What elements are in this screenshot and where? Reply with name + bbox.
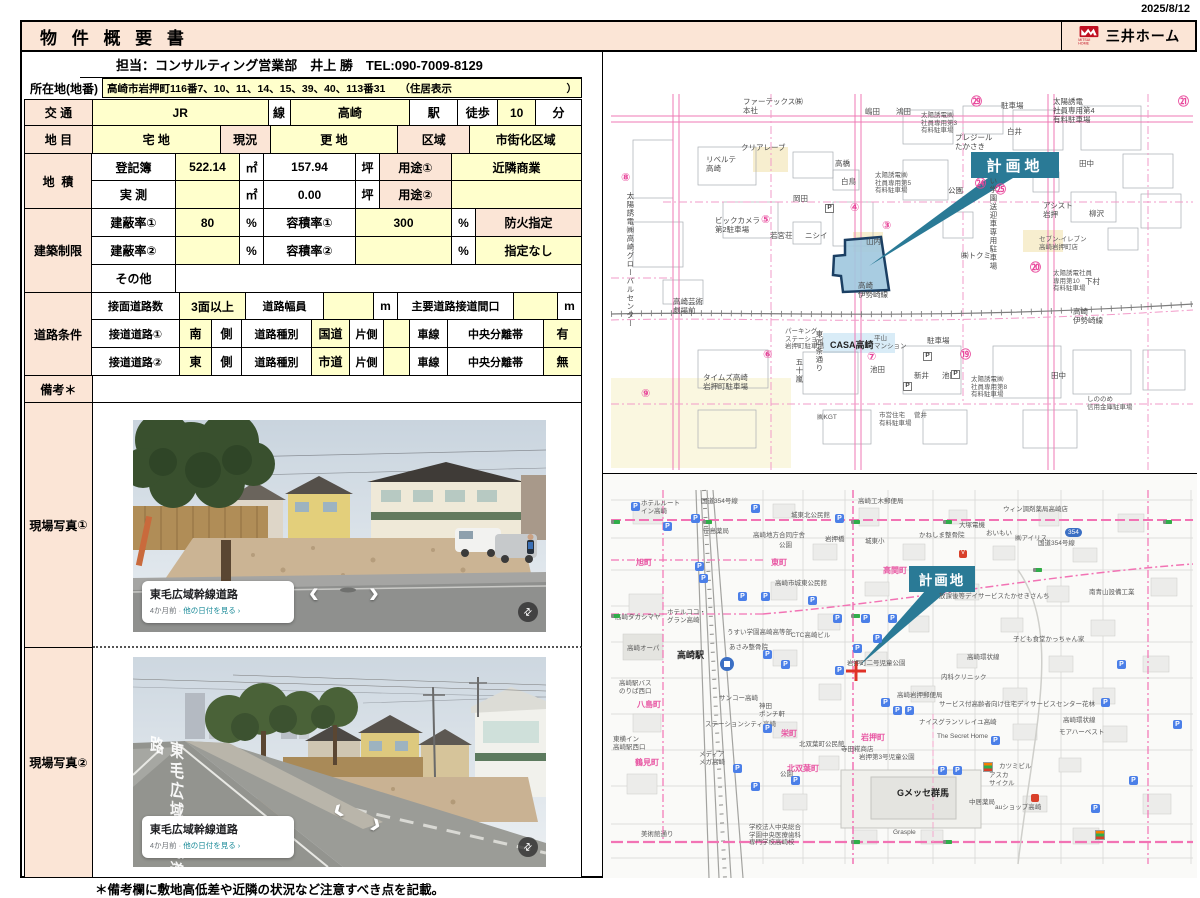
map-label: セブン-イレブン 高崎岩押町店 bbox=[1039, 236, 1087, 251]
lane-unit: 車線 bbox=[410, 320, 448, 348]
streetview-link: 他の日付を見る › bbox=[183, 841, 240, 850]
parking-icon: P bbox=[903, 382, 912, 391]
transport-line: JR bbox=[93, 100, 269, 126]
map-label: ⑦ bbox=[867, 351, 876, 364]
side-unit: 側 bbox=[212, 320, 242, 348]
tsubo-unit: 坪 bbox=[356, 181, 380, 209]
location-close: ） bbox=[567, 81, 578, 96]
land-status-label: 現況 bbox=[221, 126, 271, 154]
location-address: 高崎市岩押町116番7、10、11、14、15、39、40、113番31 bbox=[107, 81, 385, 96]
percent-unit: % bbox=[452, 237, 476, 265]
map-label: 岩押町 bbox=[861, 733, 885, 742]
map-label: 岩押町二号児童公園 bbox=[847, 660, 906, 668]
map-label: うすい学園高崎高等部 bbox=[727, 629, 792, 637]
group-road-conditions: 道路条件 接面道路数 3面以上 道路幅員 m 主要道路接道間口 m 接道道路① … bbox=[24, 293, 582, 376]
road2-type: 市道 bbox=[312, 348, 350, 376]
map-label: モアハーベスト bbox=[1059, 729, 1104, 737]
map-label: プレジール たかさき bbox=[955, 134, 993, 152]
survey-m2 bbox=[176, 181, 240, 209]
maps-panel: ファーテックス㈱ 本社嶋田鴻田太陽誘電㈱ 社員専用第3 有料駐車場駐車場太陽誘電… bbox=[602, 52, 1197, 878]
land-area-label: 地 積 bbox=[25, 154, 92, 209]
group-photo1: 現場写真① bbox=[24, 403, 582, 648]
map-label: 東横イン 高崎駅西口 bbox=[613, 736, 646, 751]
map-label: おいもい bbox=[986, 530, 1012, 538]
road-width-value bbox=[324, 293, 374, 320]
parking-icon: P bbox=[781, 660, 790, 669]
cadastral-map: ファーテックス㈱ 本社嶋田鴻田太陽誘電㈱ 社員専用第3 有料駐車場駐車場太陽誘電… bbox=[602, 52, 1197, 474]
page-title: 物 件 概 要 書 bbox=[22, 24, 1061, 49]
map-label: 高崎タカシマヤ bbox=[615, 614, 661, 622]
map-label: 岡田 bbox=[793, 195, 808, 204]
parking-icon: P bbox=[833, 614, 842, 623]
map-label: ビックカメラ 第2駐車場 bbox=[715, 217, 760, 235]
map-label: 高崎工木郵便局 bbox=[858, 498, 904, 506]
median-label: 中央分離帯 bbox=[448, 348, 544, 376]
use2-value bbox=[452, 181, 582, 209]
traffic-signal-icon bbox=[851, 520, 860, 524]
road-width-label: 道路幅員 bbox=[246, 293, 324, 320]
map-label: 栄町 bbox=[781, 729, 797, 738]
registry-m2: 522.14 bbox=[176, 154, 240, 181]
streetview-arrow-right-icon: › bbox=[369, 578, 379, 608]
map-label: 寺田糀商店 bbox=[841, 746, 874, 754]
survey-label: 実 測 bbox=[92, 181, 176, 209]
map-label: 東四条通り bbox=[814, 330, 823, 373]
parking-icon: P bbox=[631, 502, 640, 511]
parking-icon: P bbox=[1129, 776, 1138, 785]
row-remarks: 備考＊ bbox=[24, 376, 582, 403]
parking-icon: P bbox=[893, 706, 902, 715]
map-label: 鴻田 bbox=[896, 108, 911, 117]
traffic-signal-icon bbox=[851, 614, 860, 618]
map-label: 太陽誘電社員 専用第10 有料駐車場 bbox=[1053, 270, 1092, 293]
map-label: ㉙ bbox=[971, 96, 982, 109]
restrictions-label: 建築制限 bbox=[25, 209, 92, 293]
one-side-label: 片側 bbox=[350, 348, 384, 376]
parking-icon: P bbox=[1091, 804, 1100, 813]
store-poi-icon: V bbox=[959, 550, 967, 558]
map-label: 太陽誘電㈱ 社員専用第3 有料駐車場 bbox=[921, 112, 957, 135]
road-count-value: 3面以上 bbox=[180, 293, 246, 320]
store-poi-icon bbox=[983, 762, 993, 772]
location-jusho: （住居表示 bbox=[399, 81, 452, 96]
map-label: 高崎岩押郵便局 bbox=[897, 692, 943, 700]
document-date: 2025/8/12 bbox=[1141, 3, 1190, 15]
transport-walk-unit: 分 bbox=[536, 100, 582, 126]
road-type-label: 道路種別 bbox=[242, 348, 312, 376]
group-photo2: 現場写真② bbox=[24, 648, 582, 878]
parking-icon: P bbox=[853, 644, 862, 653]
parking-icon: P bbox=[835, 666, 844, 675]
row-road1: 接道道路① 南 側 道路種別 国道 片側 車線 中央分離帯 有 bbox=[92, 320, 582, 348]
map-label: 若宮荘 bbox=[770, 232, 793, 241]
map-label: ウィン調剤薬局高崎店 bbox=[1003, 506, 1068, 514]
traffic-signal-icon bbox=[851, 840, 860, 844]
map-label: 太陽誘電㈱ 社員専用第8 有料駐車場 bbox=[971, 376, 1007, 399]
brand-name: 三井ホーム bbox=[1106, 26, 1181, 46]
contact-line: 担当：コンサルティング営業部 井上 勝 TEL:090-7009-8129 bbox=[116, 55, 483, 74]
parking-icon: P bbox=[825, 204, 834, 213]
parking-icon: P bbox=[738, 592, 747, 601]
land-category-value: 宅 地 bbox=[93, 126, 221, 154]
registry-label: 登記簿 bbox=[92, 154, 176, 181]
road1-label: 接道道路① bbox=[92, 320, 180, 348]
parking-icon: P bbox=[763, 650, 772, 659]
map-label: auショップ高崎 bbox=[995, 804, 1041, 812]
map-label: アスカ サイクル bbox=[989, 772, 1015, 787]
map-label: ㉕ bbox=[995, 184, 1006, 197]
brand-logo: MITSUI HOME 三井ホーム bbox=[1061, 22, 1195, 50]
map-label: ③ bbox=[882, 220, 891, 233]
remarks-label: 備考＊ bbox=[25, 376, 93, 403]
map-label: 五十嵐 bbox=[794, 358, 803, 384]
map-label: 高崎環状線 bbox=[1063, 717, 1096, 725]
map-label: 嶋田 bbox=[865, 108, 880, 117]
contact-row: 担当：コンサルティング営業部 井上 勝 TEL:090-7009-8129 bbox=[24, 52, 582, 77]
parking-icon: P bbox=[953, 766, 962, 775]
map-label: クリアレーブ bbox=[741, 144, 786, 153]
side-unit: 側 bbox=[212, 348, 242, 376]
road2-median: 無 bbox=[544, 348, 582, 376]
traffic-signal-icon bbox=[943, 520, 952, 524]
title-bar: 物 件 概 要 書 MITSUI HOME 三井ホーム bbox=[22, 22, 1195, 52]
map-label: The Secret Home bbox=[937, 733, 988, 741]
map-label: 公園 bbox=[948, 187, 963, 196]
map-label: 菅井 bbox=[914, 412, 927, 420]
use2-label: 用途② bbox=[380, 181, 452, 209]
map-label: ㉔ bbox=[975, 178, 986, 191]
transport-line-suffix: 線 bbox=[269, 100, 291, 126]
far1-label: 容積率① bbox=[264, 209, 356, 237]
percent-unit: % bbox=[240, 237, 264, 265]
other-label: その他 bbox=[92, 265, 176, 293]
map-label: 子ども食堂かっちゃん家 bbox=[1013, 636, 1085, 644]
streetview-arrow-left-icon: ‹ bbox=[309, 578, 319, 608]
city-road-map: ホテルルート イン高崎国道354号線城東北公民館笹島薬局高崎地方合同庁舎公園高崎… bbox=[602, 474, 1197, 878]
traffic-signal-icon bbox=[611, 614, 620, 618]
registry-tsubo: 157.94 bbox=[264, 154, 356, 181]
property-table: 担当：コンサルティング営業部 井上 勝 TEL:090-7009-8129 所在… bbox=[24, 52, 582, 878]
map-label: 東町 bbox=[771, 558, 787, 567]
group-land-area: 地 積 登記簿 522.14 ㎡ 157.94 坪 用途① 近隣商業 実 測 ㎡… bbox=[24, 154, 582, 209]
map-label: アシスト 岩押 bbox=[1043, 202, 1073, 220]
map-label: しののめ 信用金庫駐車場 bbox=[1087, 396, 1133, 411]
map-label: ⑤ bbox=[761, 214, 770, 227]
location-row: 所在地(地番) 高崎市岩押町116番7、10、11、14、15、39、40、11… bbox=[24, 77, 582, 99]
map-label: 柳沢 bbox=[1089, 210, 1104, 219]
road1-dir: 南 bbox=[180, 320, 212, 348]
frontage-label: 主要道路接道間口 bbox=[398, 293, 514, 320]
map-label: 高崎 伊勢崎線 bbox=[858, 282, 888, 300]
map-label: ホテルココ・ グラン高崎 bbox=[667, 609, 706, 624]
map-label: 高崎地方合同庁舎 bbox=[753, 532, 805, 540]
road-count-label: 接面道路数 bbox=[92, 293, 180, 320]
map-label: サンコー高崎 bbox=[719, 695, 758, 703]
map-label: 公園 bbox=[779, 542, 792, 550]
parking-icon: P bbox=[938, 766, 947, 775]
map-label: 城東北公民館 bbox=[791, 512, 830, 520]
map-label: 田中 bbox=[1079, 160, 1094, 169]
parking-icon: P bbox=[761, 592, 770, 601]
far2-value bbox=[356, 237, 452, 265]
footnote: ＊備考欄に敷地高低差や近隣の状況など注意すべき点を記載。 bbox=[95, 879, 444, 898]
parking-icon: P bbox=[1173, 720, 1182, 729]
map-label: 岩押第3号児童公園 bbox=[859, 754, 915, 762]
land-category-label: 地 目 bbox=[25, 126, 93, 154]
parking-icon: P bbox=[951, 370, 960, 379]
far2-label: 容積率② bbox=[264, 237, 356, 265]
streetview-link: 他の日付を見る › bbox=[183, 606, 240, 615]
map-label: 白井 bbox=[1007, 128, 1022, 137]
lane-unit: 車線 bbox=[410, 348, 448, 376]
map-label: Gメッセ群馬 bbox=[897, 788, 949, 799]
map-label: ⑥ bbox=[763, 349, 772, 362]
map-label: 高崎駅バス のりば西口 bbox=[619, 680, 652, 695]
map-label: ファーテックス㈱ 本社 bbox=[743, 98, 803, 116]
map-label: かねしま整骨院 bbox=[919, 532, 965, 540]
streetview-ago: 4か月前 bbox=[150, 606, 177, 615]
parking-icon: P bbox=[991, 736, 1000, 745]
map-label: 駐車場 bbox=[1001, 102, 1024, 111]
photo1-label: 現場写真① bbox=[25, 403, 93, 648]
use1-value: 近隣商業 bbox=[452, 154, 582, 181]
map-label: ㈱KGT bbox=[817, 414, 837, 422]
bcr1-label: 建蔽率① bbox=[92, 209, 176, 237]
store-poi-icon bbox=[1031, 794, 1039, 802]
map-label: 田中 bbox=[1051, 372, 1066, 381]
parking-icon: P bbox=[881, 698, 890, 707]
map-label: 国道354号線 bbox=[1038, 540, 1075, 548]
site-photo-2: 東毛広域幹線道路 ‹ › 東毛広域幹線道路 4か月前 · 他の日付を見る › ⇄ bbox=[133, 657, 546, 867]
parking-icon: P bbox=[699, 574, 708, 583]
road2-lanes bbox=[384, 348, 410, 376]
map-label: 高崎市城東公民館 bbox=[775, 580, 827, 588]
frontage-value bbox=[514, 293, 558, 320]
m-unit: m bbox=[374, 293, 398, 320]
map-label: 池田 bbox=[870, 366, 885, 375]
median-label: 中央分離帯 bbox=[448, 320, 544, 348]
remarks-value bbox=[93, 376, 582, 403]
map-label: メディア メガ高崎 bbox=[699, 751, 725, 766]
map-label: 白鳥 bbox=[841, 178, 856, 187]
traffic-signal-icon bbox=[1033, 568, 1042, 572]
map-label: ④ bbox=[850, 202, 859, 215]
map-label: 高崎オーパ bbox=[627, 645, 659, 653]
streetview-title: 東毛広域幹線道路 bbox=[150, 821, 286, 837]
one-side-label: 片側 bbox=[350, 320, 384, 348]
traffic-signal-icon bbox=[943, 840, 952, 844]
map-label: 高関町 bbox=[883, 566, 907, 575]
percent-unit: % bbox=[452, 209, 476, 237]
map-label: 高崎環状線 bbox=[967, 654, 1000, 662]
m-unit: m bbox=[558, 293, 582, 320]
map-label: Grasple bbox=[893, 829, 916, 837]
map-label: 国道354号線 bbox=[701, 498, 738, 506]
map-label: 内科クリニック bbox=[941, 674, 987, 682]
map-label: 平山 マンション bbox=[874, 335, 907, 350]
map-label: 城東小 bbox=[865, 538, 885, 546]
parking-icon: P bbox=[751, 504, 760, 513]
map-label: 354 bbox=[1065, 528, 1082, 537]
roads-label: 道路条件 bbox=[25, 293, 92, 376]
row-bcr2: 建蔽率② % 容積率② % 指定なし bbox=[92, 237, 582, 265]
brand-sub-text: MITSUI HOME bbox=[1078, 38, 1100, 45]
map-label: 笹島薬局 bbox=[703, 528, 729, 536]
map-label: 高崎 伊勢崎線 bbox=[1073, 308, 1103, 326]
map-label: 高崎駅 bbox=[677, 650, 704, 661]
streetview-title: 東毛広域幹線道路 bbox=[150, 586, 286, 602]
road-type-label: 道路種別 bbox=[242, 320, 312, 348]
map-label: 旭町 bbox=[636, 558, 652, 567]
other-value bbox=[176, 265, 582, 293]
map-label: ⑳ bbox=[1030, 262, 1041, 275]
map-label: 八島町 bbox=[637, 700, 661, 709]
map-label: 岩押橋 bbox=[825, 536, 845, 544]
map-label: 北双葉町公民館 bbox=[799, 741, 845, 749]
tsubo-unit: 坪 bbox=[356, 154, 380, 181]
parking-icon: P bbox=[905, 706, 914, 715]
map-label: 駐車場 bbox=[927, 337, 950, 346]
percent-unit: % bbox=[240, 209, 264, 237]
traffic-signal-icon bbox=[611, 520, 620, 524]
row-road2: 接道道路② 東 側 道路種別 市道 片側 車線 中央分離帯 無 bbox=[92, 348, 582, 376]
map-label: 高橋 bbox=[835, 160, 850, 169]
mitsui-home-logo-icon: MITSUI HOME bbox=[1077, 26, 1101, 46]
row-transport: 交 通 JR 線 高崎 駅 徒歩 10 分 bbox=[24, 99, 582, 126]
transport-label: 交 通 bbox=[25, 100, 93, 126]
site-photo-1: ‹ › 東毛広域幹線道路 4か月前 · 他の日付を見る › ⇄ bbox=[133, 420, 546, 632]
map-label: サービス付高齢者向け住宅デイサービスセンター花林 bbox=[939, 701, 1095, 709]
plan-site-callout: 計画地 bbox=[971, 152, 1059, 178]
transport-walk-value: 10 bbox=[498, 100, 536, 126]
road1-lanes bbox=[384, 320, 410, 348]
m2-unit: ㎡ bbox=[240, 181, 264, 209]
map-label: 学校法人中央総合 学園中央医療歯科 専門学校高崎校 bbox=[749, 824, 801, 847]
map-label: 山内 bbox=[866, 238, 881, 247]
map-label: 太陽誘電㈱ 社員専用第5 有料駐車場 bbox=[875, 172, 911, 195]
map-label: 鶴見町 bbox=[635, 758, 659, 767]
parking-icon: P bbox=[888, 614, 897, 623]
map-label: 大塚電機 bbox=[959, 522, 985, 530]
document-frame: 物 件 概 要 書 MITSUI HOME 三井ホーム 担当：コンサルティング営… bbox=[20, 20, 1197, 878]
map-label: タイムズ高崎 岩押町駐車場 bbox=[703, 374, 748, 392]
parking-icon: P bbox=[791, 776, 800, 785]
parking-icon: P bbox=[835, 514, 844, 523]
map-label: ニシイ bbox=[805, 232, 828, 241]
fire-label: 防火指定 bbox=[476, 209, 582, 237]
parking-icon: P bbox=[763, 724, 772, 733]
map-label: 新井 bbox=[914, 372, 929, 381]
row-land-survey: 実 測 ㎡ 0.00 坪 用途② bbox=[92, 181, 582, 209]
parking-icon: P bbox=[751, 782, 760, 791]
survey-tsubo: 0.00 bbox=[264, 181, 356, 209]
streetview-caption: 東毛広域幹線道路 4か月前 · 他の日付を見る › bbox=[142, 581, 294, 623]
road1-type: 国道 bbox=[312, 320, 350, 348]
fire-value: 指定なし bbox=[476, 237, 582, 265]
contact-underline bbox=[80, 77, 582, 78]
parking-icon: P bbox=[873, 634, 882, 643]
location-value: 高崎市岩押町116番7、10、11、14、15、39、40、113番31 （住居… bbox=[102, 78, 582, 98]
streetview-ago: 4か月前 bbox=[150, 841, 177, 850]
use1-label: 用途① bbox=[380, 154, 452, 181]
map-label: ⑲ bbox=[960, 349, 971, 362]
map-label: ⑧ bbox=[621, 172, 630, 185]
traffic-signal-icon bbox=[1163, 520, 1172, 524]
bcr2-value bbox=[176, 237, 240, 265]
map-label: 神田 ポンチ軒 bbox=[759, 703, 785, 718]
row-bcr1: 建蔽率① 80 % 容積率① 300 % 防火指定 bbox=[92, 209, 582, 237]
transport-walk-label: 徒歩 bbox=[458, 100, 498, 126]
map-label: 高崎芸術 劇場前 bbox=[673, 298, 703, 316]
map-label: 中居薬局 bbox=[969, 799, 995, 807]
map-label: ホテルルート イン高崎 bbox=[641, 500, 680, 515]
row-road-count: 接面道路数 3面以上 道路幅員 m 主要道路接道間口 m bbox=[92, 293, 582, 320]
road1-median: 有 bbox=[544, 320, 582, 348]
parking-icon: P bbox=[1117, 660, 1126, 669]
map-label: CASA高崎 bbox=[830, 340, 874, 351]
parking-icon: P bbox=[923, 352, 932, 361]
map-label: 美術館通り bbox=[641, 831, 674, 839]
plan-site-callout: 計画地 bbox=[909, 566, 975, 592]
land-zone-value: 市街化区域 bbox=[470, 126, 582, 154]
parking-icon: P bbox=[808, 596, 817, 605]
group-building-restrictions: 建築制限 建蔽率① 80 % 容積率① 300 % 防火指定 建蔽率② % 容積… bbox=[24, 209, 582, 293]
row-land-registry: 登記簿 522.14 ㎡ 157.94 坪 用途① 近隣商業 bbox=[92, 154, 582, 181]
m2-unit: ㎡ bbox=[240, 154, 264, 181]
map-label: ⑨ bbox=[641, 388, 650, 401]
map-label: ㉑ bbox=[1178, 96, 1189, 109]
parking-icon: P bbox=[691, 514, 700, 523]
map-label: 太陽誘電㈱高崎グローバルセンター bbox=[625, 192, 634, 328]
photo2-cell: 東毛広域幹線道路 ‹ › 東毛広域幹線道路 4か月前 · 他の日付を見る › ⇄ bbox=[93, 648, 582, 878]
road2-dir: 東 bbox=[180, 348, 212, 376]
map-label: 太陽誘電 社員専用第4 有料駐車場 bbox=[1053, 98, 1095, 125]
parking-icon: P bbox=[733, 764, 742, 773]
parking-icon: P bbox=[695, 562, 704, 571]
row-land-category: 地 目 宅 地 現況 更 地 区域 市街化区域 bbox=[24, 126, 582, 154]
row-other: その他 bbox=[92, 265, 582, 293]
photo1-cell: ‹ › 東毛広域幹線道路 4か月前 · 他の日付を見る › ⇄ bbox=[93, 403, 582, 648]
map-label: 市営住宅 有料駐車場 bbox=[879, 412, 912, 427]
far1-value: 300 bbox=[356, 209, 452, 237]
map-label: CTC高崎ビル bbox=[791, 632, 830, 640]
bcr2-label: 建蔽率② bbox=[92, 237, 176, 265]
transport-station: 高崎 bbox=[291, 100, 411, 126]
map-label: リベルテ 高崎 bbox=[706, 156, 736, 174]
transport-station-suffix: 駅 bbox=[410, 100, 458, 126]
store-poi-icon bbox=[1095, 830, 1105, 840]
photo2-label: 現場写真② bbox=[25, 648, 93, 878]
land-zone-label: 区域 bbox=[398, 126, 470, 154]
map-label: ㈱トクミ bbox=[961, 252, 991, 261]
map-label: 南青山設備工業 bbox=[1089, 589, 1135, 597]
traffic-signal-icon bbox=[703, 520, 712, 524]
parking-icon: P bbox=[1101, 698, 1110, 707]
map-label: カツミビル bbox=[999, 763, 1032, 771]
map-label: ナイスグランソレイユ高崎 bbox=[919, 719, 997, 727]
location-label: 所在地(地番) bbox=[24, 80, 102, 97]
road2-label: 接道道路② bbox=[92, 348, 180, 376]
parking-icon: P bbox=[663, 522, 672, 531]
map-label: 放課後等デイサービスたかせきさんち bbox=[939, 593, 1050, 601]
parking-icon: P bbox=[861, 614, 870, 623]
streetview-caption: 東毛広域幹線道路 4か月前 · 他の日付を見る › bbox=[142, 816, 294, 858]
land-status-value: 更 地 bbox=[271, 126, 399, 154]
bcr1-value: 80 bbox=[176, 209, 240, 237]
